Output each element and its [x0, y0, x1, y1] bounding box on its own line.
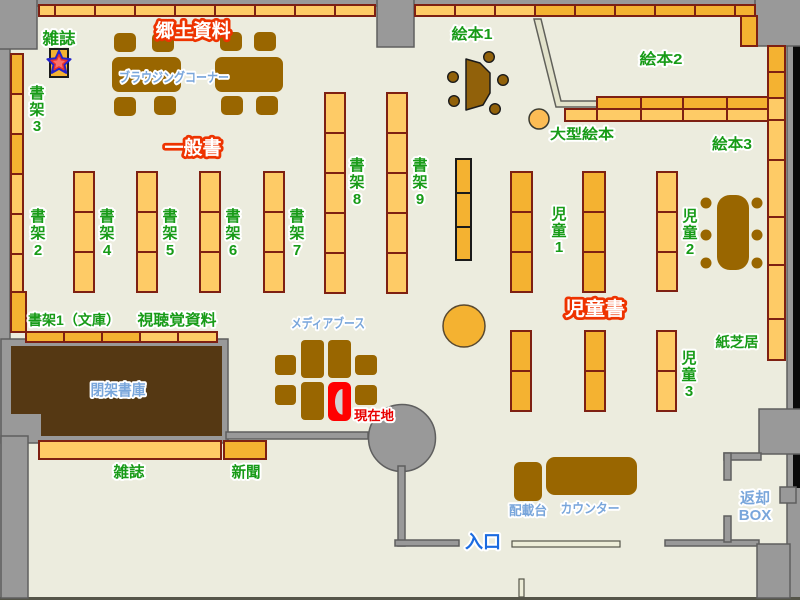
svg-text:ブラウジングコーナー: ブラウジングコーナー [119, 70, 229, 85]
svg-text:雑誌: 雑誌 [41, 29, 75, 48]
svg-text:郷土資料: 郷土資料 [156, 19, 231, 42]
svg-text:大型絵本: 大型絵本 [550, 126, 615, 142]
svg-text:絵本2: 絵本2 [640, 50, 683, 68]
svg-text:入口: 入口 [465, 532, 501, 552]
svg-text:絵本3: 絵本3 [712, 135, 752, 153]
svg-text:紙芝居: 紙芝居 [716, 334, 759, 350]
svg-text:配載台: 配載台 [509, 503, 547, 518]
svg-text:児童書: 児童書 [564, 297, 625, 320]
svg-text:現在地: 現在地 [354, 408, 394, 423]
svg-text:メディアブース: メディアブース [291, 316, 365, 331]
svg-text:返却BOX: 返却BOX [739, 489, 772, 524]
svg-text:一般書: 一般書 [165, 136, 222, 159]
svg-text:新聞: 新聞 [232, 463, 261, 481]
svg-text:絵本1: 絵本1 [452, 25, 493, 43]
svg-text:視聴覚資料: 視聴覚資料 [136, 311, 216, 329]
svg-text:雑誌: 雑誌 [112, 463, 144, 481]
svg-text:閉架書庫: 閉架書庫 [91, 381, 146, 399]
svg-text:カウンター: カウンター [561, 501, 620, 516]
svg-text:書架1（文庫）: 書架1（文庫） [28, 312, 120, 328]
